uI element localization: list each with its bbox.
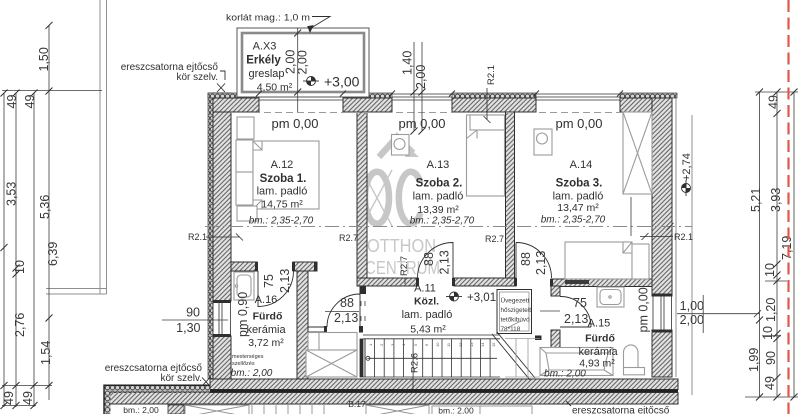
svg-text:bm.: 2,35-2,70: bm.: 2,35-2,70 [410, 216, 475, 227]
svg-text:1,30: 1,30 [176, 321, 200, 335]
svg-text:Szoba 2.: Szoba 2. [416, 178, 463, 190]
svg-text:5,36: 5,36 [38, 195, 52, 219]
svg-text:R2.7: R2.7 [399, 256, 410, 276]
svg-text:49: 49 [2, 391, 16, 405]
svg-text:Üvegezett: Üvegezett [501, 297, 530, 305]
svg-text:49: 49 [23, 95, 37, 109]
svg-text:bm.: 2,00: bm.: 2,00 [231, 368, 273, 379]
svg-text:75: 75 [262, 274, 276, 288]
svg-text:greslap: greslap [248, 68, 284, 80]
svg-text:3,93: 3,93 [769, 188, 783, 212]
svg-text:88: 88 [422, 252, 436, 266]
svg-text:A.X3: A.X3 [253, 41, 277, 53]
svg-text:4,50 m²: 4,50 m² [257, 82, 293, 94]
svg-text:A.13: A.13 [427, 159, 450, 171]
svg-text:10: 10 [763, 263, 777, 277]
svg-text:lam. padló: lam. padló [257, 186, 308, 198]
svg-text:1,50: 1,50 [37, 47, 51, 71]
svg-text:kör szelv.: kör szelv. [161, 373, 203, 384]
svg-text:6,39: 6,39 [46, 242, 60, 266]
svg-text:10: 10 [435, 342, 440, 347]
svg-text:75: 75 [573, 296, 587, 310]
svg-text:hőszigetelt: hőszigetelt [501, 307, 532, 314]
svg-text:kör szelv.: kör szelv. [177, 72, 219, 83]
svg-text:R2.7: R2.7 [339, 233, 358, 243]
svg-text:13,39 m²: 13,39 m² [417, 204, 459, 216]
svg-text:5,21: 5,21 [749, 188, 763, 212]
svg-text:Közl.: Közl. [414, 296, 439, 308]
svg-text:A.15: A.15 [588, 318, 611, 330]
svg-text:bm.: 2,35-2,70: bm.: 2,35-2,70 [249, 216, 314, 227]
svg-text:7,19: 7,19 [780, 236, 794, 260]
svg-text:13: 13 [469, 342, 474, 347]
svg-text:kerámia: kerámia [578, 346, 618, 358]
svg-text:1,40: 1,40 [401, 51, 415, 75]
svg-text:R2.1: R2.1 [674, 232, 693, 242]
svg-text:pm 0,00: pm 0,00 [556, 116, 603, 131]
svg-text:1,20: 1,20 [764, 298, 778, 322]
svg-text:korlát mag.: 1,0 m: korlát mag.: 1,0 m [226, 13, 310, 24]
svg-text:R2.1: R2.1 [486, 65, 497, 85]
svg-text:R2.1: R2.1 [188, 232, 207, 242]
svg-text:kerámia: kerámia [246, 324, 286, 336]
svg-text:pm 0,00: pm 0,00 [272, 116, 319, 131]
svg-text:13,47 m²: 13,47 m² [557, 202, 599, 214]
svg-text:10: 10 [13, 260, 27, 274]
svg-text:pm 0,90: pm 0,90 [236, 292, 250, 337]
svg-text:+3,01: +3,01 [467, 292, 496, 304]
svg-text:49: 49 [21, 391, 35, 405]
svg-text:3,72 m²: 3,72 m² [248, 337, 284, 349]
svg-text:mesterséges: mesterséges [232, 354, 264, 360]
svg-text:49: 49 [767, 95, 781, 109]
svg-text:90: 90 [186, 306, 200, 320]
svg-text:A.14: A.14 [570, 159, 593, 171]
svg-text:10: 10 [761, 326, 775, 340]
svg-text:Erkély: Erkély [246, 55, 281, 67]
svg-text:ereszcsatorna ejtőcső: ereszcsatorna ejtőcső [572, 406, 670, 414]
svg-text:14,75 m²: 14,75 m² [261, 199, 303, 211]
svg-text:2,00: 2,00 [296, 50, 310, 74]
svg-text:bm.: 2,35-2,70: bm.: 2,35-2,70 [541, 215, 606, 226]
svg-text:2,00: 2,00 [680, 313, 704, 327]
svg-text:Fürdő: Fürdő [253, 311, 283, 323]
svg-text:B.17: B.17 [348, 399, 366, 409]
svg-text:A.12: A.12 [271, 159, 294, 171]
svg-text:bm.: 2,00: bm.: 2,00 [438, 406, 474, 414]
svg-text:R2.6: R2.6 [410, 353, 421, 373]
svg-text:lam. padló: lam. padló [553, 191, 604, 203]
svg-text:1,99: 1,99 [747, 348, 761, 372]
svg-text:15: 15 [491, 342, 496, 347]
svg-text:90: 90 [764, 351, 778, 365]
svg-text:R2.7: R2.7 [485, 234, 504, 244]
svg-text:12: 12 [458, 342, 463, 347]
svg-text:14: 14 [480, 342, 485, 347]
svg-text:3,53: 3,53 [5, 182, 19, 206]
svg-text:szellőzés: szellőzés [232, 361, 255, 367]
svg-text:49: 49 [5, 95, 19, 109]
svg-text:tetőkibúvó: tetőkibúvó [501, 317, 531, 324]
svg-text:bm.: 2,00: bm.: 2,00 [544, 369, 586, 380]
svg-text:2,76: 2,76 [13, 313, 27, 337]
svg-text:Szoba 3.: Szoba 3. [556, 178, 603, 190]
svg-text:Szoba 1.: Szoba 1. [260, 173, 307, 185]
svg-text:2,13: 2,13 [564, 312, 588, 326]
svg-text:A.11: A.11 [414, 283, 436, 295]
svg-text:2,13: 2,13 [534, 251, 548, 275]
svg-text:+3,00: +3,00 [324, 74, 360, 90]
svg-text:2,00: 2,00 [414, 65, 428, 89]
svg-text:2,13: 2,13 [278, 269, 292, 293]
svg-text:78*118: 78*118 [501, 326, 521, 333]
svg-text:5,43 m²: 5,43 m² [410, 324, 446, 336]
svg-text:88: 88 [519, 252, 533, 266]
svg-text:+2,74: +2,74 [681, 153, 693, 181]
svg-text:lam. padló: lam. padló [402, 309, 453, 321]
svg-text:lam. padló: lam. padló [413, 191, 464, 203]
svg-text:1,00: 1,00 [680, 299, 704, 313]
svg-text:Fürdő: Fürdő [585, 333, 615, 345]
svg-text:pm 0,00: pm 0,00 [637, 287, 651, 332]
svg-text:49: 49 [763, 376, 777, 390]
svg-text:2,13: 2,13 [334, 311, 358, 325]
svg-text:2,13: 2,13 [438, 250, 452, 274]
svg-text:88: 88 [340, 296, 354, 310]
svg-text:bm.: 2,00: bm.: 2,00 [123, 405, 159, 414]
svg-text:A.16: A.16 [255, 294, 278, 306]
svg-text:1,54: 1,54 [39, 341, 53, 365]
